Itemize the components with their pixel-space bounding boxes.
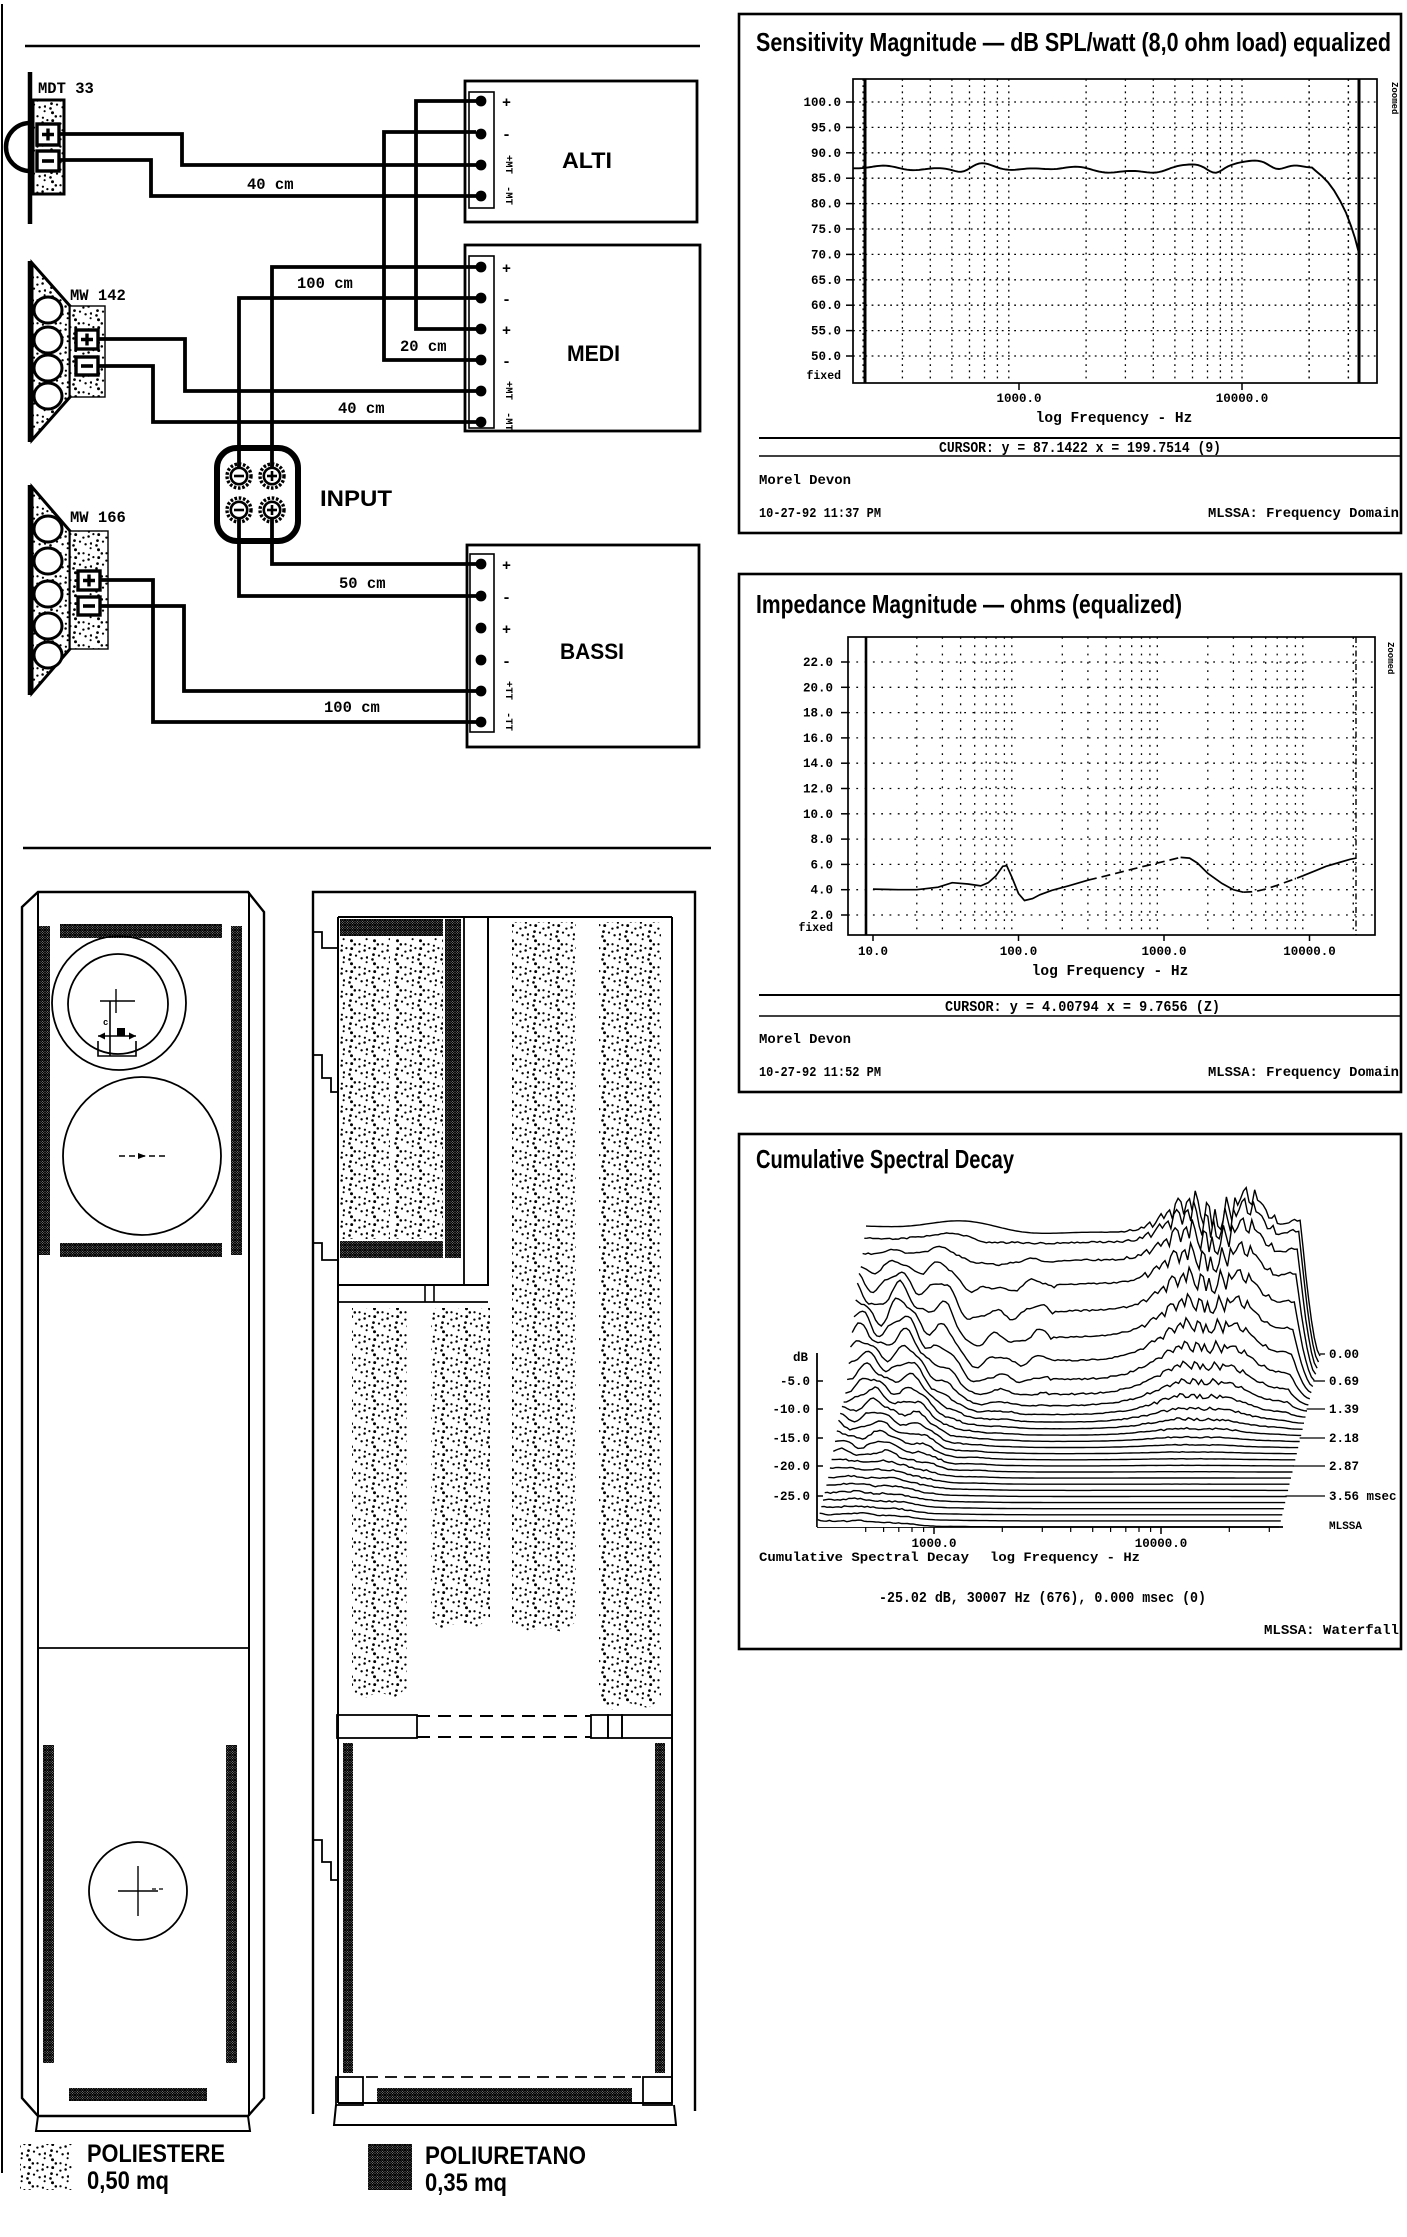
svg-text:1000.0: 1000.0 [996, 392, 1041, 406]
svg-text:1.39: 1.39 [1329, 1403, 1359, 1417]
svg-text:MLSSA: MLSSA [1329, 1521, 1362, 1533]
svg-text:2.0: 2.0 [810, 909, 833, 923]
svg-text:20 cm: 20 cm [400, 338, 447, 356]
svg-text:10-27-92 11:52 PM: 10-27-92 11:52 PM [759, 1066, 881, 1081]
svg-text:6.0: 6.0 [810, 858, 833, 872]
svg-text:Morel Devon: Morel Devon [759, 1033, 851, 1048]
svg-text:0,50 mq: 0,50 mq [87, 2167, 169, 2195]
svg-text:Cumulative Spectral Decay: Cumulative Spectral Decay [756, 1144, 1014, 1174]
svg-text:10.0: 10.0 [803, 808, 833, 822]
svg-text:INPUT: INPUT [320, 486, 393, 511]
svg-text:MW 166: MW 166 [70, 509, 126, 527]
svg-text:+: + [502, 622, 511, 639]
svg-text:-MT: -MT [502, 186, 514, 205]
svg-text:POLIURETANO: POLIURETANO [425, 2142, 586, 2170]
svg-text:-: - [502, 127, 511, 144]
svg-text:+MT: +MT [502, 381, 514, 400]
svg-text:0,35 mq: 0,35 mq [425, 2169, 507, 2197]
svg-text:18.0: 18.0 [803, 707, 833, 721]
svg-text:MLSSA: Waterfall: MLSSA: Waterfall [1264, 1624, 1399, 1639]
svg-text:CURSOR: y = 87.1422 x = 199.75: CURSOR: y = 87.1422 x = 199.7514 (9) [939, 441, 1221, 457]
svg-text:-15.0: -15.0 [772, 1432, 810, 1446]
svg-text:-25.0: -25.0 [772, 1490, 810, 1504]
svg-text:-20.0: -20.0 [772, 1460, 810, 1474]
svg-text:4.0: 4.0 [810, 884, 833, 898]
svg-text:dB: dB [793, 1351, 809, 1365]
svg-text:100.0: 100.0 [803, 96, 841, 110]
svg-text:40 cm: 40 cm [247, 176, 294, 194]
svg-text:3.56 msec: 3.56 msec [1329, 1490, 1397, 1504]
svg-text:95.0: 95.0 [811, 121, 841, 135]
svg-text:+MT: +MT [502, 155, 514, 174]
svg-text:85.0: 85.0 [811, 172, 841, 186]
svg-text:POLIESTERE: POLIESTERE [87, 2140, 225, 2168]
svg-text:-: - [502, 590, 511, 607]
svg-text:20.0: 20.0 [803, 681, 833, 695]
svg-text:CURSOR: y = 4.00794 x = 9.7656: CURSOR: y = 4.00794 x = 9.7656 (Z) [945, 1000, 1220, 1016]
svg-text:50.0: 50.0 [811, 350, 841, 364]
svg-text:+: + [502, 95, 511, 112]
svg-text:100 cm: 100 cm [297, 275, 353, 293]
svg-text:log Frequency - Hz: log Frequency - Hz [1032, 964, 1189, 980]
svg-text:Impedance Magnitude — ohms (eq: Impedance Magnitude — ohms (equalized) [756, 589, 1182, 619]
svg-text:c: c [103, 1018, 108, 1028]
svg-text:1000.0: 1000.0 [911, 1537, 956, 1551]
svg-text:60.0: 60.0 [811, 299, 841, 313]
svg-text:-: - [502, 292, 511, 309]
svg-text:Zoomed: Zoomed [1389, 82, 1399, 114]
svg-text:MLSSA: Frequency Domain: MLSSA: Frequency Domain [1208, 1066, 1399, 1081]
svg-text:Morel Devon: Morel Devon [759, 474, 851, 489]
svg-text:+: + [502, 323, 511, 340]
svg-text:-MT: -MT [502, 412, 514, 431]
svg-text:75.0: 75.0 [811, 223, 841, 237]
svg-text:90.0: 90.0 [811, 147, 841, 161]
svg-text:22.0: 22.0 [803, 656, 833, 670]
svg-text:+TT: +TT [502, 681, 514, 700]
svg-text:10.0: 10.0 [858, 945, 888, 959]
svg-text:ALTI: ALTI [562, 148, 612, 173]
svg-text:100.0: 100.0 [1000, 945, 1038, 959]
svg-text:2.18: 2.18 [1329, 1432, 1359, 1446]
svg-text:80.0: 80.0 [811, 198, 841, 212]
svg-text:14.0: 14.0 [803, 757, 833, 771]
svg-text:Cumulative Spectral Decay: Cumulative Spectral Decay [759, 1550, 969, 1565]
svg-text:MW 142: MW 142 [70, 287, 126, 305]
svg-text:Sensitivity Magnitude — dB SPL: Sensitivity Magnitude — dB SPL/watt (8,0… [756, 27, 1391, 57]
svg-text:-: - [502, 654, 511, 671]
svg-text:BASSI: BASSI [560, 639, 624, 664]
svg-text:0.00: 0.00 [1329, 1348, 1359, 1362]
svg-text:log Frequency - Hz: log Frequency - Hz [1036, 411, 1193, 427]
svg-text:55.0: 55.0 [811, 325, 841, 339]
svg-text:10000.0: 10000.0 [1216, 392, 1269, 406]
svg-text:Zoomed: Zoomed [1385, 642, 1395, 674]
svg-text:100 cm: 100 cm [324, 699, 380, 717]
svg-text:10000.0: 10000.0 [1283, 945, 1336, 959]
svg-text:MDT 33: MDT 33 [38, 80, 94, 98]
svg-text:-: - [502, 354, 511, 371]
svg-text:65.0: 65.0 [811, 274, 841, 288]
svg-text:+: + [502, 558, 511, 575]
svg-text:+: + [502, 261, 511, 278]
svg-text:-TT: -TT [502, 712, 514, 731]
svg-text:50 cm: 50 cm [339, 575, 386, 593]
svg-text:fixed: fixed [798, 922, 833, 935]
svg-text:12.0: 12.0 [803, 783, 833, 797]
svg-text:log Frequency - Hz: log Frequency - Hz [990, 1550, 1140, 1565]
svg-text:70.0: 70.0 [811, 248, 841, 262]
svg-text:10-27-92 11:37 PM: 10-27-92 11:37 PM [759, 507, 881, 522]
svg-text:2.87: 2.87 [1329, 1460, 1359, 1474]
svg-text:16.0: 16.0 [803, 732, 833, 746]
svg-text:MEDI: MEDI [567, 341, 620, 366]
svg-text:MLSSA: Frequency Domain: MLSSA: Frequency Domain [1208, 507, 1399, 522]
svg-text:40 cm: 40 cm [338, 400, 385, 418]
svg-text:-10.0: -10.0 [772, 1403, 810, 1417]
svg-text:1000.0: 1000.0 [1141, 945, 1186, 959]
svg-text:8.0: 8.0 [810, 833, 833, 847]
svg-text:fixed: fixed [806, 370, 841, 383]
svg-text:10000.0: 10000.0 [1135, 1537, 1188, 1551]
svg-text:-5.0: -5.0 [780, 1375, 810, 1389]
svg-text:0.69: 0.69 [1329, 1375, 1359, 1389]
svg-text:-25.02 dB, 30007 Hz (676), 0.0: -25.02 dB, 30007 Hz (676), 0.000 msec (0… [879, 1591, 1206, 1607]
